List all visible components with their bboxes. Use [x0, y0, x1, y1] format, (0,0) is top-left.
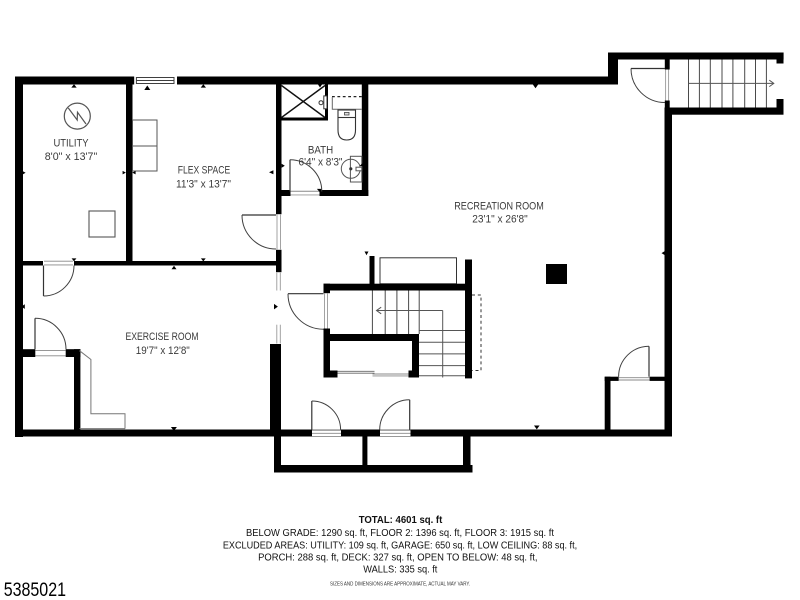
- svg-text:BATH: BATH: [308, 145, 333, 157]
- svg-text:RECREATION ROOM: RECREATION ROOM: [454, 201, 544, 213]
- svg-text:11'3" x 13'7": 11'3" x 13'7": [176, 179, 231, 191]
- svg-text:23'1" x 26'8": 23'1" x 26'8": [472, 214, 528, 226]
- svg-text:WALLS: 335 sq. ft: WALLS: 335 sq. ft: [363, 565, 437, 576]
- svg-text:EXERCISE ROOM: EXERCISE ROOM: [125, 331, 198, 343]
- svg-text:6'4" x 8'3": 6'4" x 8'3": [299, 157, 343, 169]
- svg-text:PORCH: 288 sq. ft, DECK: 327 s: PORCH: 288 sq. ft, DECK: 327 sq. ft, OPE…: [258, 553, 537, 564]
- svg-text:5385021: 5385021: [4, 580, 66, 600]
- svg-text:SIZES AND DIMENSIONS ARE APPRO: SIZES AND DIMENSIONS ARE APPROXIMATE, AC…: [330, 582, 470, 588]
- svg-text:FLEX SPACE: FLEX SPACE: [178, 165, 231, 177]
- svg-text:8'0" x 13'7": 8'0" x 13'7": [45, 151, 98, 163]
- svg-text:EXCLUDED AREAS: UTILITY: 109 s: EXCLUDED AREAS: UTILITY: 109 sq. ft, GAR…: [223, 541, 577, 552]
- svg-text:UTILITY: UTILITY: [54, 138, 90, 150]
- svg-text:TOTAL: 4601 sq. ft: TOTAL: 4601 sq. ft: [359, 514, 443, 526]
- svg-text:19'7" x 12'8": 19'7" x 12'8": [136, 345, 190, 357]
- svg-text:BELOW GRADE: 1290 sq. ft, FLOO: BELOW GRADE: 1290 sq. ft, FLOOR 2: 1396 …: [246, 528, 554, 539]
